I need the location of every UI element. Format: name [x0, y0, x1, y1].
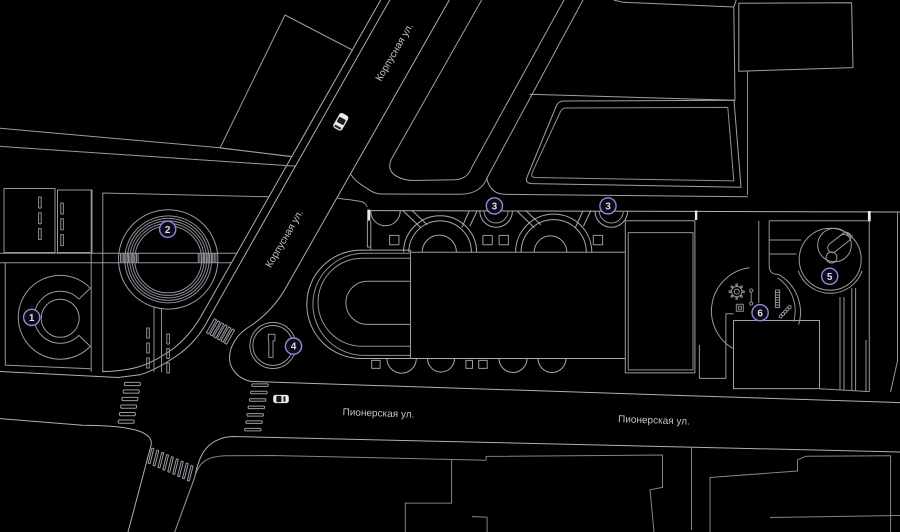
svg-text:4: 4 — [291, 342, 297, 353]
svg-text:3: 3 — [605, 202, 611, 213]
svg-text:2: 2 — [165, 225, 171, 236]
svg-text:3: 3 — [492, 202, 498, 213]
svg-text:5: 5 — [827, 272, 833, 283]
svg-text:6: 6 — [757, 308, 763, 319]
svg-text:1: 1 — [29, 313, 35, 324]
